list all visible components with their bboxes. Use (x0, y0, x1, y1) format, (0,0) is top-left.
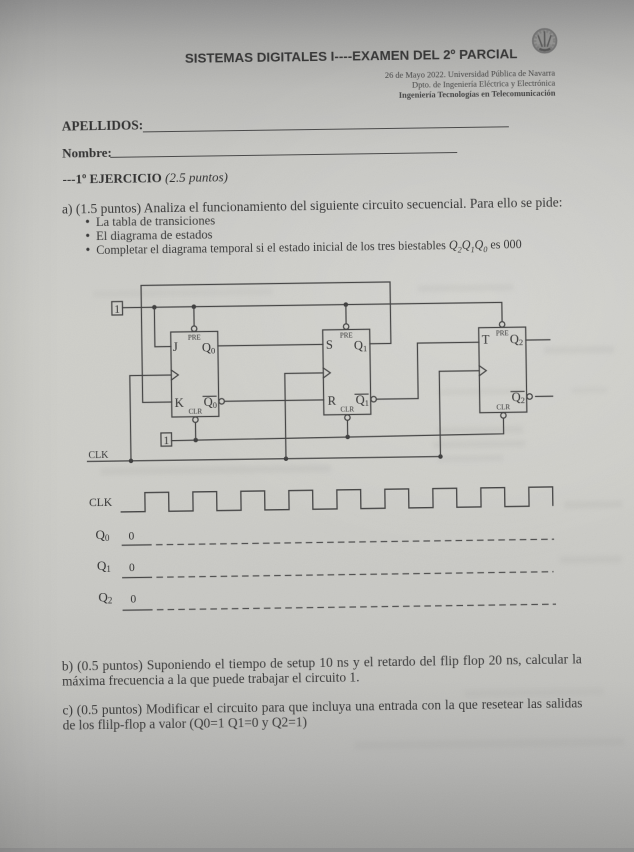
svg-text:0: 0 (128, 531, 134, 543)
svg-text:Q2: Q2 (98, 589, 112, 605)
svg-text:Q1: Q1 (97, 558, 111, 574)
svg-text:0: 0 (130, 594, 136, 606)
svg-text:0: 0 (129, 562, 135, 574)
svg-text:Q0: Q0 (95, 527, 110, 543)
svg-text:CLK: CLK (89, 497, 113, 509)
